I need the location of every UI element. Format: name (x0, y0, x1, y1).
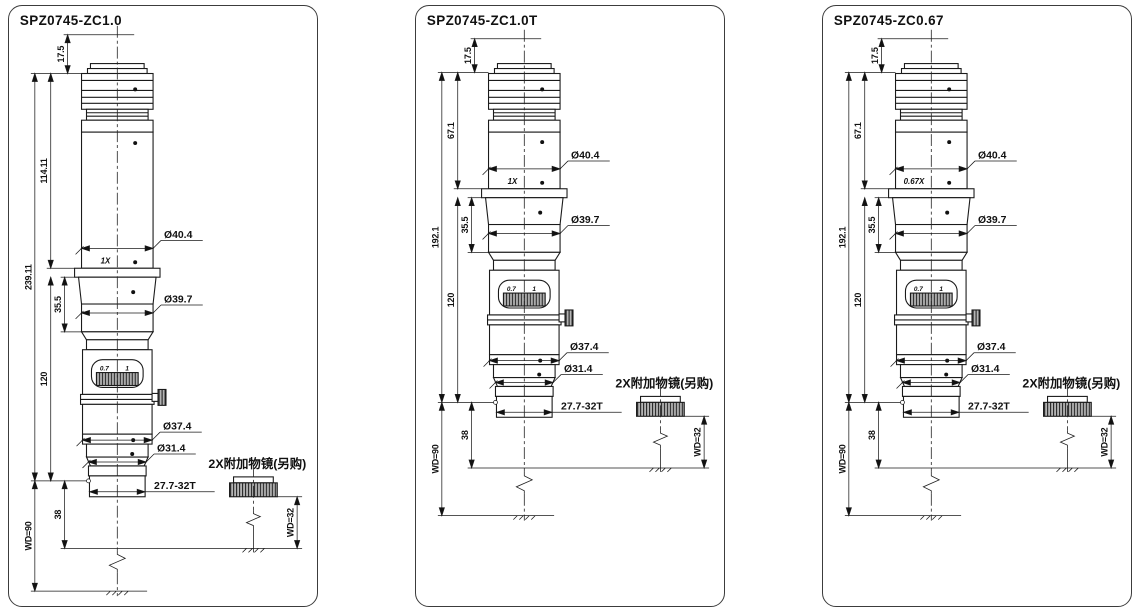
dim-label: 120 (39, 372, 49, 387)
dim-label: 38 (53, 510, 63, 520)
dim-label: 120 (853, 293, 863, 308)
dim-label: 35.5 (867, 217, 877, 234)
dim-label: 1 (939, 286, 943, 293)
dimensions (439, 39, 706, 516)
dim-label: WD=90 (23, 521, 33, 550)
dim-label: Ø40.4 (164, 230, 193, 241)
dim-label: SPZ0745-ZC0.67 (834, 13, 944, 28)
panel-zc0-67: 17.567.1192.135.512038WD=90WD=32Ø40.4Ø39… (822, 5, 1132, 607)
dim-label: 38 (460, 430, 470, 440)
dim-label: Ø31.4 (564, 364, 593, 375)
dim-label: 114.11 (39, 158, 49, 183)
dim-label: 1X (101, 256, 111, 265)
dim-label: 27.7-32T (561, 401, 603, 412)
dim-label: 67.1 (853, 122, 863, 139)
lens-drawing-zc0-67: 17.567.1192.135.512038WD=90WD=32Ø40.4Ø39… (823, 6, 1131, 606)
dim-label: Ø40.4 (571, 150, 600, 161)
dim-label: 17.5 (463, 47, 473, 64)
dim-label: 2X附加物镜(另购) (615, 375, 713, 390)
dim-label: Ø37.4 (977, 342, 1006, 353)
extension-lines (438, 39, 709, 520)
dim-label: 2X附加物镜(另购) (1022, 375, 1120, 390)
dim-label: Ø40.4 (978, 150, 1007, 161)
dimensions (32, 35, 299, 591)
lens-body (889, 64, 980, 418)
dim-label: Ø39.7 (571, 215, 600, 226)
dim-label: Ø31.4 (157, 444, 186, 455)
dimensions (846, 39, 1113, 516)
dim-label: WD=90 (837, 444, 847, 473)
lens-drawing-zc1-0: 17.5114.11239.1135.512038WD=90WD=32Ø40.4… (9, 6, 317, 606)
panel-zc1-0: 17.5114.11239.1135.512038WD=90WD=32Ø40.4… (8, 5, 318, 607)
drawing-sheet: { "background": "#ffffff", "line_color":… (0, 0, 1140, 612)
lens-body (75, 64, 166, 497)
extension-lines (845, 39, 1116, 520)
dim-label: 1 (532, 286, 536, 293)
dim-label: 35.5 (53, 296, 63, 313)
extension-lines (31, 35, 302, 595)
dim-label: 192.1 (837, 227, 847, 249)
dim-label: 27.7-32T (968, 401, 1010, 412)
dim-label: WD=90 (430, 444, 440, 473)
dim-label: WD=32 (1100, 427, 1110, 456)
dim-label: 2X附加物镜(另购) (208, 456, 306, 471)
dim-label: 239.11 (23, 264, 33, 290)
dim-label: Ø39.7 (164, 295, 193, 306)
dim-label: WD=32 (693, 427, 703, 456)
dim-label: 0.67X (904, 177, 925, 186)
panel-zc1-0t: 17.567.1192.135.512038WD=90WD=32Ø40.4Ø39… (415, 5, 725, 607)
dim-label: Ø39.7 (978, 215, 1007, 226)
dim-label: Ø31.4 (971, 364, 1000, 375)
dim-label: 17.5 (870, 47, 880, 64)
dim-label: 0.7 (507, 286, 516, 293)
lens-drawing-zc1-0t: 17.567.1192.135.512038WD=90WD=32Ø40.4Ø39… (416, 6, 724, 606)
dim-label: WD=32 (286, 508, 296, 537)
dim-label: 0.7 (100, 366, 109, 373)
dim-label: Ø37.4 (570, 342, 599, 353)
dim-label: 67.1 (446, 122, 456, 139)
lens-body (482, 64, 573, 418)
dim-label: 1 (125, 366, 129, 373)
dim-label: 35.5 (460, 217, 470, 234)
dim-label: 17.5 (56, 46, 66, 63)
dim-label: 1X (508, 177, 518, 186)
dim-label: 27.7-32T (154, 481, 196, 492)
dim-label: 38 (867, 430, 877, 440)
dim-label: 0.7 (914, 286, 923, 293)
dim-label: Ø37.4 (163, 422, 192, 433)
dim-label: 120 (446, 293, 456, 308)
dim-label: SPZ0745-ZC1.0T (427, 13, 538, 28)
dim-label: 192.1 (430, 227, 440, 249)
dim-label: SPZ0745-ZC1.0 (20, 13, 122, 28)
